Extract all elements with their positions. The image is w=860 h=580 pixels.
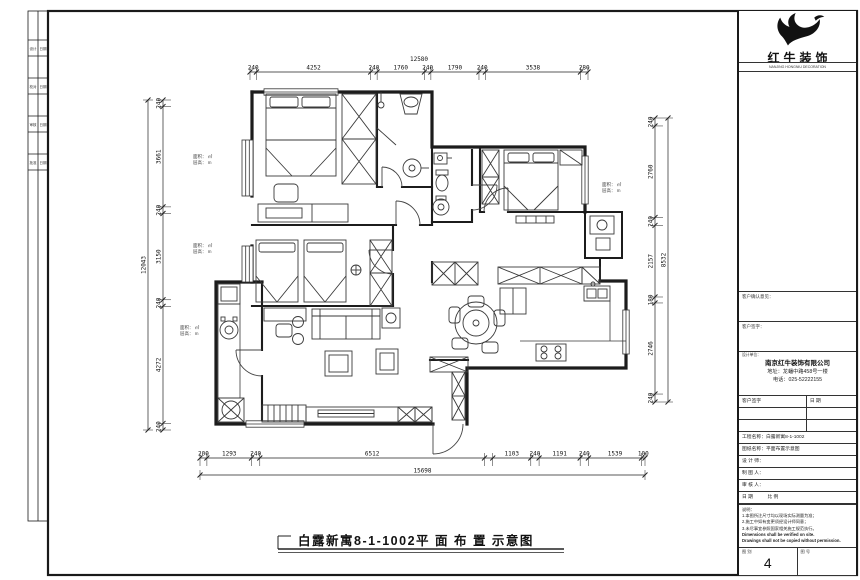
- drawing-sheet: 设计日期 校对日期 审核日期 批准日期: [0, 0, 860, 580]
- room-label: 面积： ㎡: [193, 153, 213, 160]
- brand-subtitle: NANJING HONGNIU DECORATION: [739, 63, 856, 72]
- dim-chain-left: 24036612403150240427224012043: [141, 97, 172, 432]
- entrance-door-arc: [433, 424, 463, 454]
- door-arc: [369, 250, 393, 274]
- svg-text:100: 100: [638, 451, 649, 458]
- svg-text:校对: 校对: [30, 84, 37, 89]
- sheet-type-cell: 图 别 4: [739, 548, 798, 575]
- exterior-walls: [216, 92, 626, 424]
- stool: [293, 317, 304, 328]
- door-arc: [382, 167, 402, 187]
- dining-chair: [494, 310, 505, 326]
- tv-bench: [306, 407, 432, 422]
- drawing-title: 白露新寓8-1-1002平 面 布 置 示意图: [298, 533, 534, 548]
- pouf: [376, 349, 398, 374]
- svg-text:240: 240: [648, 392, 655, 403]
- room-label: 层高： m: [193, 159, 212, 166]
- sheet-frame: [28, 11, 857, 575]
- svg-text:批准: 批准: [30, 160, 37, 165]
- basin: [220, 317, 238, 339]
- svg-text:240: 240: [156, 297, 163, 308]
- sheet-number-row: 图 别 4 图 号: [739, 548, 856, 576]
- sheet-no-label: 图 号: [798, 549, 857, 555]
- svg-text:240: 240: [368, 65, 379, 72]
- checker-row: 审 核 人：: [739, 480, 856, 492]
- side-table: [382, 308, 400, 328]
- svg-text:180: 180: [648, 294, 655, 305]
- drawing-name-row: 图纸名称：平面布置示意图: [739, 444, 856, 456]
- svg-text:240: 240: [250, 451, 261, 458]
- svg-text:1293: 1293: [222, 451, 237, 458]
- svg-text:1103: 1103: [505, 451, 520, 458]
- svg-text:240: 240: [156, 204, 163, 215]
- dining-chair: [449, 307, 460, 323]
- bull-logo-icon: [763, 13, 833, 47]
- svg-text:2157: 2157: [648, 254, 655, 269]
- dim-chain-bottom: 2001293240651211032401191240153910015698: [198, 451, 650, 481]
- svg-text:240: 240: [156, 421, 163, 432]
- svg-text:240: 240: [579, 451, 590, 458]
- svg-text:审核: 审核: [30, 122, 37, 127]
- svg-text:日期: 日期: [40, 122, 47, 127]
- dining-chair: [482, 342, 498, 353]
- svg-text:3150: 3150: [156, 249, 163, 264]
- company-address: 地址：龙蟠中路458号一楼: [739, 368, 856, 376]
- project-name-row: 工程名称：白露新寓8-1-1002: [739, 432, 856, 444]
- stool: [293, 334, 304, 345]
- toilet: [436, 170, 448, 191]
- room-label: 层高： m: [180, 330, 199, 337]
- balcony-walls: [585, 212, 622, 281]
- row-cell: [739, 420, 807, 431]
- bay-window: [242, 246, 253, 282]
- drafter-row: 制 图 人：: [739, 468, 856, 480]
- water-heater: [590, 216, 614, 250]
- client-signature-field: 客户签字：: [739, 322, 856, 352]
- media-cabinet: [262, 405, 306, 422]
- room-label: 面积： ㎡: [602, 181, 622, 188]
- svg-text:3661: 3661: [156, 149, 163, 164]
- row-cell: 日 期: [807, 396, 856, 407]
- room-label: 面积： ㎡: [193, 242, 213, 249]
- dim-chain-top: 240425224017602401790240353828012580: [248, 56, 591, 80]
- svg-text:4272: 4272: [156, 357, 163, 372]
- svg-text:12580: 12580: [410, 56, 428, 63]
- svg-text:280: 280: [579, 65, 590, 72]
- logo-area: 红牛装饰: [739, 11, 856, 63]
- sofa: [312, 309, 380, 339]
- company-name: 南京红牛装饰有限公司: [739, 359, 856, 368]
- washer: [218, 398, 244, 422]
- dining-chair: [452, 338, 468, 349]
- row-cell: [807, 420, 856, 431]
- room-label: 层高： m: [602, 187, 621, 194]
- kitchen-cabinets: [498, 267, 600, 284]
- title-block-table: 客户签字 日 期 工程名称：白露新寓8-1-1002 图纸名称：平面布置示意图 …: [739, 396, 856, 505]
- twin-bed: [304, 240, 346, 302]
- washbasin: [403, 159, 429, 177]
- svg-text:日期: 日期: [40, 84, 47, 89]
- company-phone: 电话：025-52222155: [739, 376, 856, 384]
- notes-block: 说明： 1.本图所注尺寸均以现场实际测量为准； 2.施工中如有变更须经设计师同意…: [739, 505, 856, 548]
- door-arc: [396, 201, 420, 225]
- note-line: Drawings shall not be copied without per…: [742, 538, 853, 544]
- window: [582, 156, 588, 204]
- interior-walls: [252, 92, 585, 424]
- row-cell: [807, 408, 856, 419]
- dimension-chains: 2404252240176024017902403538280125802001…: [141, 56, 674, 480]
- designer-row: 设 计 师：: [739, 456, 856, 468]
- svg-text:240: 240: [477, 65, 488, 72]
- room-label: 面积： ㎡: [180, 324, 200, 331]
- shower-fixture: [377, 92, 396, 145]
- row-cell: 客户签字: [739, 396, 807, 407]
- company-info: 设计单位： 南京红牛装饰有限公司 地址：龙蟠中路458号一楼 电话：025-52…: [739, 352, 856, 396]
- cabinet: [432, 262, 478, 285]
- svg-text:1191: 1191: [552, 451, 567, 458]
- nightstand: [351, 265, 361, 275]
- table-row: [739, 420, 856, 432]
- svg-text:240: 240: [422, 65, 433, 72]
- bay-window: [242, 140, 253, 196]
- dresser: [258, 204, 348, 222]
- svg-text:设计: 设计: [30, 46, 37, 51]
- washing-machine: [433, 196, 449, 215]
- svg-text:240: 240: [248, 65, 259, 72]
- stove: [536, 344, 566, 361]
- svg-text:8532: 8532: [661, 252, 668, 267]
- dim-chain-right: 2402760240215718027462408532: [648, 116, 674, 405]
- svg-text:6512: 6512: [365, 451, 380, 458]
- svg-text:240: 240: [648, 216, 655, 227]
- column-cabinet: [452, 372, 465, 420]
- svg-text:4252: 4252: [306, 65, 321, 72]
- svg-text:1539: 1539: [608, 451, 623, 458]
- svg-text:240: 240: [530, 451, 541, 458]
- furniture: [218, 92, 626, 422]
- bench: [516, 216, 554, 223]
- floor-plan-canvas: 设计日期 校对日期 审核日期 批准日期: [0, 0, 860, 580]
- svg-text:15698: 15698: [413, 468, 431, 475]
- master-bed: [266, 94, 336, 176]
- client-opinion-field: 客户确认意见：: [739, 292, 856, 322]
- svg-text:日期: 日期: [40, 160, 47, 165]
- bed: [504, 150, 558, 210]
- room-label: 层高： m: [193, 248, 212, 255]
- chair: [276, 324, 292, 337]
- row-cell: [739, 408, 807, 419]
- pedestal-sink: [400, 94, 422, 114]
- svg-text:2760: 2760: [648, 164, 655, 179]
- svg-text:日期: 日期: [40, 46, 47, 51]
- svg-text:240: 240: [648, 116, 655, 127]
- svg-text:12043: 12043: [141, 256, 148, 274]
- armchair: [274, 184, 298, 202]
- svg-text:240: 240: [156, 97, 163, 108]
- window: [623, 310, 629, 354]
- svg-text:1760: 1760: [394, 65, 409, 72]
- desk: [264, 308, 306, 321]
- title-block-blank-field: [739, 72, 856, 292]
- brand-name: 红牛装饰: [739, 52, 856, 63]
- kitchen-sink: [584, 282, 610, 301]
- date-scale-row: 日 期 比 例: [739, 492, 856, 504]
- sink: [434, 153, 452, 164]
- wardrobe: [342, 94, 376, 184]
- counter-edge: [520, 301, 626, 341]
- refrigerator: [218, 284, 240, 304]
- coffee-table: [325, 351, 352, 376]
- table-row: [739, 408, 856, 420]
- sheet-no-cell: 图 号: [798, 548, 857, 575]
- svg-text:2746: 2746: [648, 341, 655, 356]
- svg-text:200: 200: [198, 451, 209, 458]
- svg-text:1790: 1790: [448, 65, 463, 72]
- dining-chair: [468, 296, 484, 307]
- sheet-number: 4: [739, 555, 797, 571]
- title-block: 红牛装饰 NANJING HONGNIU DECORATION 客户确认意见： …: [737, 11, 857, 575]
- table-row: 客户签字 日 期: [739, 396, 856, 408]
- company-header: 设计单位：: [739, 352, 856, 359]
- drawing-title-bar: 白露新寓8-1-1002平 面 布 置 示意图: [278, 533, 564, 553]
- corner-cabinet: [560, 150, 582, 165]
- svg-text:3538: 3538: [526, 65, 541, 72]
- floor-plan: 面积： ㎡ 层高： m 面积： ㎡ 层高： m 面积： ㎡ 层高： m 面积： …: [141, 56, 674, 480]
